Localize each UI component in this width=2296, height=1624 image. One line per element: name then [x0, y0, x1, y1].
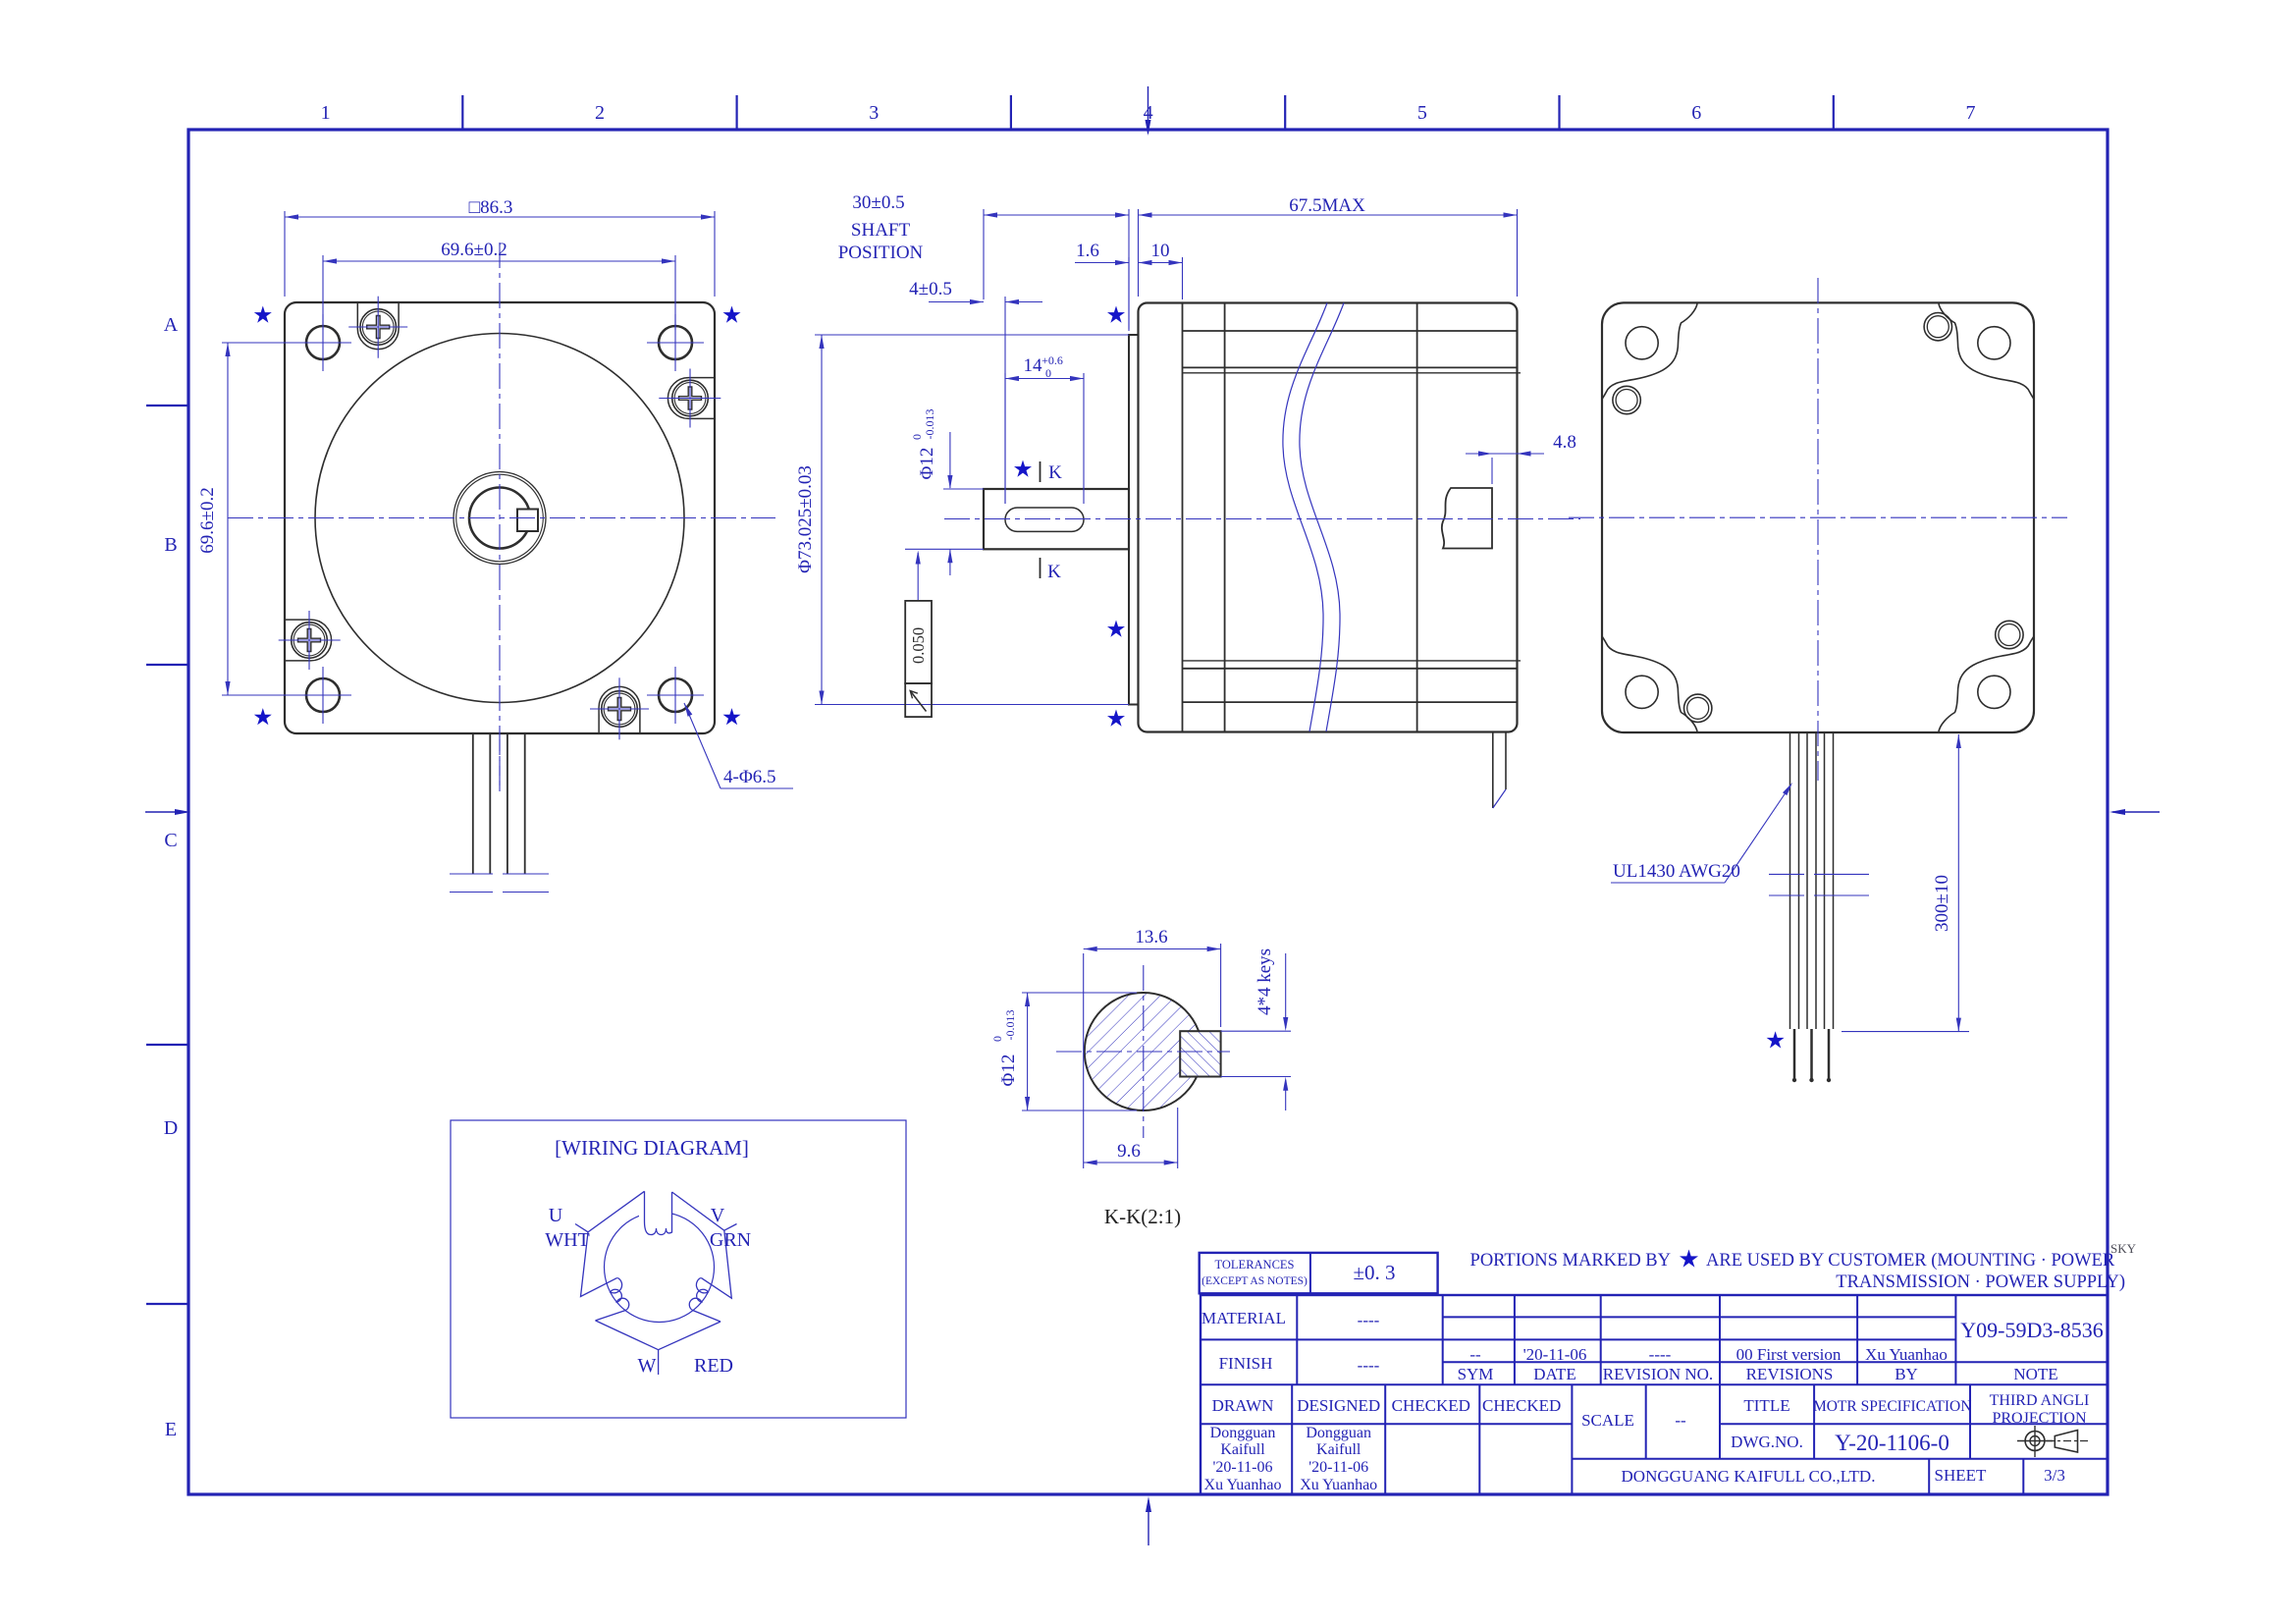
svg-text:3/3: 3/3: [2044, 1466, 2065, 1485]
svg-text:RED: RED: [694, 1355, 733, 1377]
svg-text:TITLE: TITLE: [1743, 1396, 1789, 1415]
svg-text:W: W: [638, 1355, 657, 1377]
svg-text:Xu Yuanhao: Xu Yuanhao: [1300, 1477, 1377, 1493]
svg-text:□86.3: □86.3: [469, 197, 513, 218]
svg-text:13.6: 13.6: [1135, 927, 1167, 947]
svg-text:TRANSMISSION · POWER SUPPLY): TRANSMISSION · POWER SUPPLY): [1836, 1272, 2125, 1292]
svg-text:POSITION: POSITION: [838, 243, 924, 263]
svg-text:Dongguan: Dongguan: [1210, 1425, 1276, 1441]
svg-text:DATE: DATE: [1533, 1365, 1575, 1383]
svg-text:DWG.NO.: DWG.NO.: [1731, 1433, 1803, 1451]
svg-text:K: K: [1048, 462, 1062, 483]
svg-text:-0.013: -0.013: [1003, 1010, 1017, 1041]
svg-text:3: 3: [869, 102, 879, 124]
svg-text:Xu Yuanhao: Xu Yuanhao: [1865, 1345, 1948, 1364]
svg-text:TOLERANCES: TOLERANCES: [1214, 1258, 1294, 1272]
svg-text:4*4 keys: 4*4 keys: [1255, 948, 1275, 1015]
svg-text:FINISH: FINISH: [1219, 1354, 1273, 1373]
svg-text:69.6±0.2: 69.6±0.2: [441, 240, 507, 260]
svg-text:MATERIAL: MATERIAL: [1201, 1309, 1286, 1327]
svg-text:4.8: 4.8: [1553, 432, 1576, 453]
svg-text:REVISION NO.: REVISION NO.: [1603, 1365, 1713, 1383]
svg-text:SCALE: SCALE: [1581, 1411, 1634, 1430]
svg-text:[WIRING DIAGRAM]: [WIRING DIAGRAM]: [555, 1136, 749, 1160]
svg-text:UL1430 AWG20: UL1430 AWG20: [1613, 861, 1740, 882]
svg-text:'20-11-06: '20-11-06: [1213, 1459, 1273, 1476]
svg-text:DONGGUANG KAIFULL CO.,LTD.: DONGGUANG KAIFULL CO.,LTD.: [1622, 1467, 1876, 1486]
svg-text:(EXCEPT AS NOTES): (EXCEPT AS NOTES): [1201, 1275, 1308, 1287]
svg-text:SHEET: SHEET: [1935, 1466, 1988, 1485]
svg-text:PORTIONS MARKED BY: PORTIONS MARKED BY: [1470, 1251, 1671, 1271]
svg-text:Y-20-1106-0: Y-20-1106-0: [1835, 1431, 1949, 1455]
svg-text:5: 5: [1417, 102, 1427, 124]
svg-text:69.6±0.2: 69.6±0.2: [197, 487, 218, 553]
svg-text:00 First version: 00 First version: [1736, 1345, 1842, 1364]
svg-text:0: 0: [910, 434, 924, 440]
svg-text:PROJECTION: PROJECTION: [1992, 1410, 2086, 1427]
svg-text:--: --: [1469, 1345, 1481, 1364]
svg-text:K-K(2:1): K-K(2:1): [1104, 1205, 1181, 1228]
svg-text:1.6: 1.6: [1076, 241, 1099, 261]
svg-text:30±0.5: 30±0.5: [852, 192, 904, 213]
svg-text:4±0.5: 4±0.5: [909, 279, 952, 299]
svg-text:----: ----: [1358, 1356, 1380, 1375]
svg-text:0: 0: [990, 1036, 1004, 1042]
svg-text:10: 10: [1151, 241, 1170, 261]
svg-text:D: D: [164, 1117, 178, 1139]
svg-text:BY: BY: [1895, 1365, 1918, 1383]
svg-text:'20-11-06: '20-11-06: [1523, 1345, 1587, 1364]
svg-text:A: A: [164, 314, 179, 336]
svg-text:4-Φ6.5: 4-Φ6.5: [723, 767, 775, 787]
svg-text:DRAWN: DRAWN: [1212, 1396, 1274, 1415]
svg-text:Dongguan: Dongguan: [1306, 1425, 1371, 1441]
svg-text:6: 6: [1691, 102, 1701, 124]
svg-text:300±10: 300±10: [1932, 875, 1952, 932]
svg-text:'20-11-06: '20-11-06: [1308, 1459, 1368, 1476]
svg-text:WHT: WHT: [545, 1229, 590, 1251]
svg-text:SYM: SYM: [1458, 1365, 1494, 1383]
svg-text:14: 14: [1024, 355, 1043, 376]
svg-text:1: 1: [321, 102, 331, 124]
svg-text:MOTR SPECIFICATION: MOTR SPECIFICATION: [1813, 1398, 1971, 1415]
svg-text:NOTE: NOTE: [2013, 1365, 2057, 1383]
svg-text:----: ----: [1358, 1311, 1380, 1329]
svg-text:67.5MAX: 67.5MAX: [1289, 195, 1365, 216]
svg-text:SKY: SKY: [2110, 1241, 2137, 1256]
svg-text:7: 7: [1966, 102, 1976, 124]
svg-text:B: B: [164, 534, 177, 556]
svg-text:0: 0: [1045, 366, 1051, 380]
svg-text:U: U: [549, 1205, 563, 1226]
svg-text:Φ12: Φ12: [917, 448, 937, 480]
svg-text:----: ----: [1649, 1345, 1672, 1364]
svg-text:C: C: [164, 830, 177, 851]
svg-text:Φ73.025±0.03: Φ73.025±0.03: [795, 465, 816, 573]
svg-text:ARE USED BY CUSTOMER (MOUNTING: ARE USED BY CUSTOMER (MOUNTING · POWER: [1706, 1251, 2115, 1271]
svg-text:0.050: 0.050: [909, 627, 928, 664]
svg-text:±0. 3: ±0. 3: [1353, 1261, 1395, 1284]
svg-text:+0.6: +0.6: [1041, 353, 1063, 367]
svg-text:Kaifull: Kaifull: [1316, 1441, 1362, 1458]
svg-text:Xu Yuanhao: Xu Yuanhao: [1204, 1477, 1282, 1493]
svg-text:V: V: [711, 1205, 725, 1226]
svg-text:-0.013: -0.013: [923, 409, 936, 440]
svg-text:2: 2: [595, 102, 605, 124]
svg-text:9.6: 9.6: [1117, 1141, 1141, 1162]
svg-text:CHECKED: CHECKED: [1482, 1396, 1561, 1415]
svg-text:Y09-59D3-8536: Y09-59D3-8536: [1960, 1318, 2103, 1342]
svg-text:THIRD ANGLI: THIRD ANGLI: [1990, 1392, 2090, 1409]
svg-text:REVISIONS: REVISIONS: [1746, 1365, 1834, 1383]
svg-text:DESIGNED: DESIGNED: [1297, 1396, 1380, 1415]
svg-text:Φ12: Φ12: [998, 1055, 1019, 1087]
svg-text:Kaifull: Kaifull: [1220, 1441, 1265, 1458]
svg-text:CHECKED: CHECKED: [1392, 1396, 1470, 1415]
svg-text:--: --: [1675, 1411, 1686, 1430]
svg-text:K: K: [1047, 562, 1061, 582]
svg-text:E: E: [165, 1419, 177, 1440]
svg-text:SHAFT: SHAFT: [851, 220, 911, 241]
svg-text:GRN: GRN: [710, 1229, 751, 1251]
